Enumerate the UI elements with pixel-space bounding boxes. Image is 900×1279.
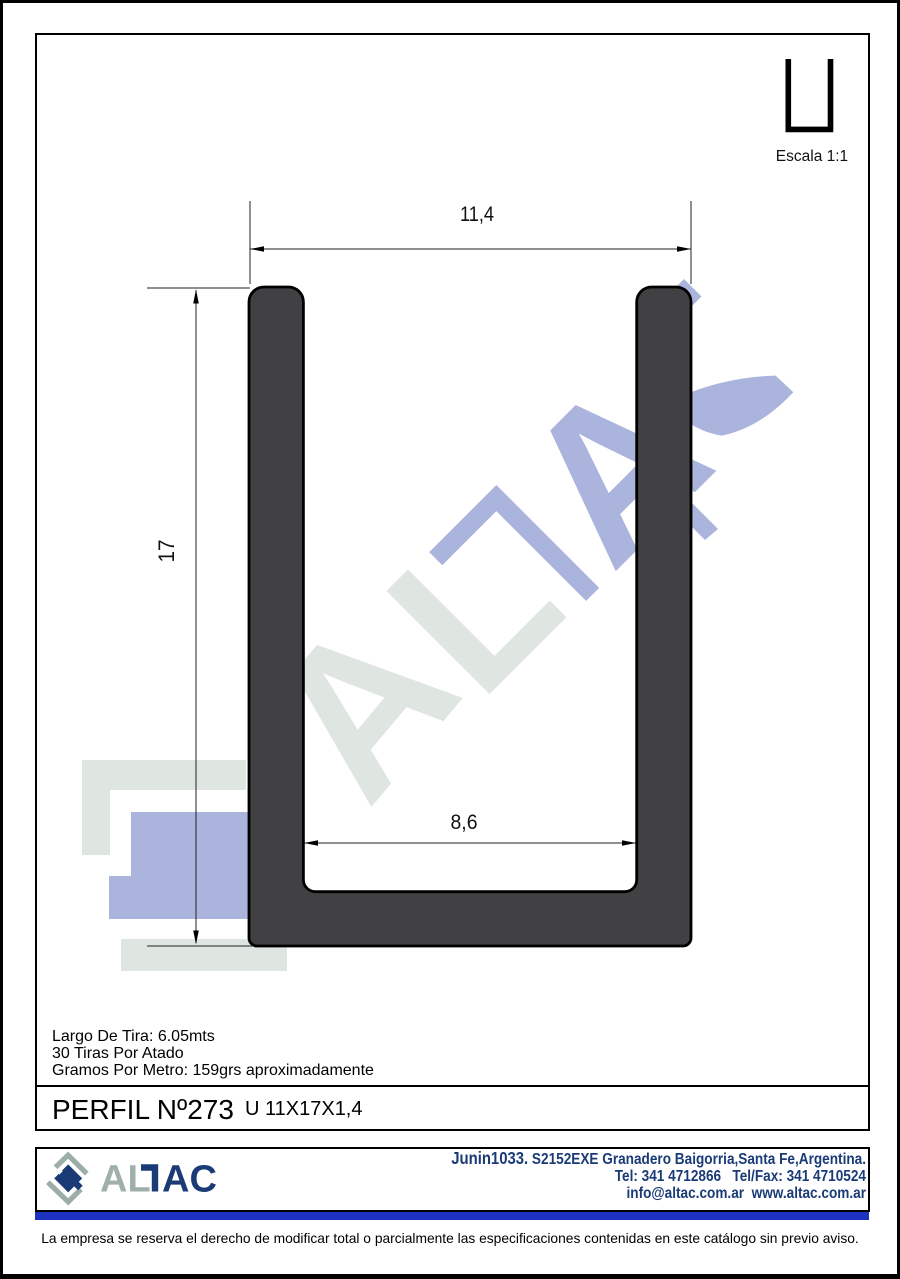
- svg-text:AC: AC: [162, 1159, 217, 1201]
